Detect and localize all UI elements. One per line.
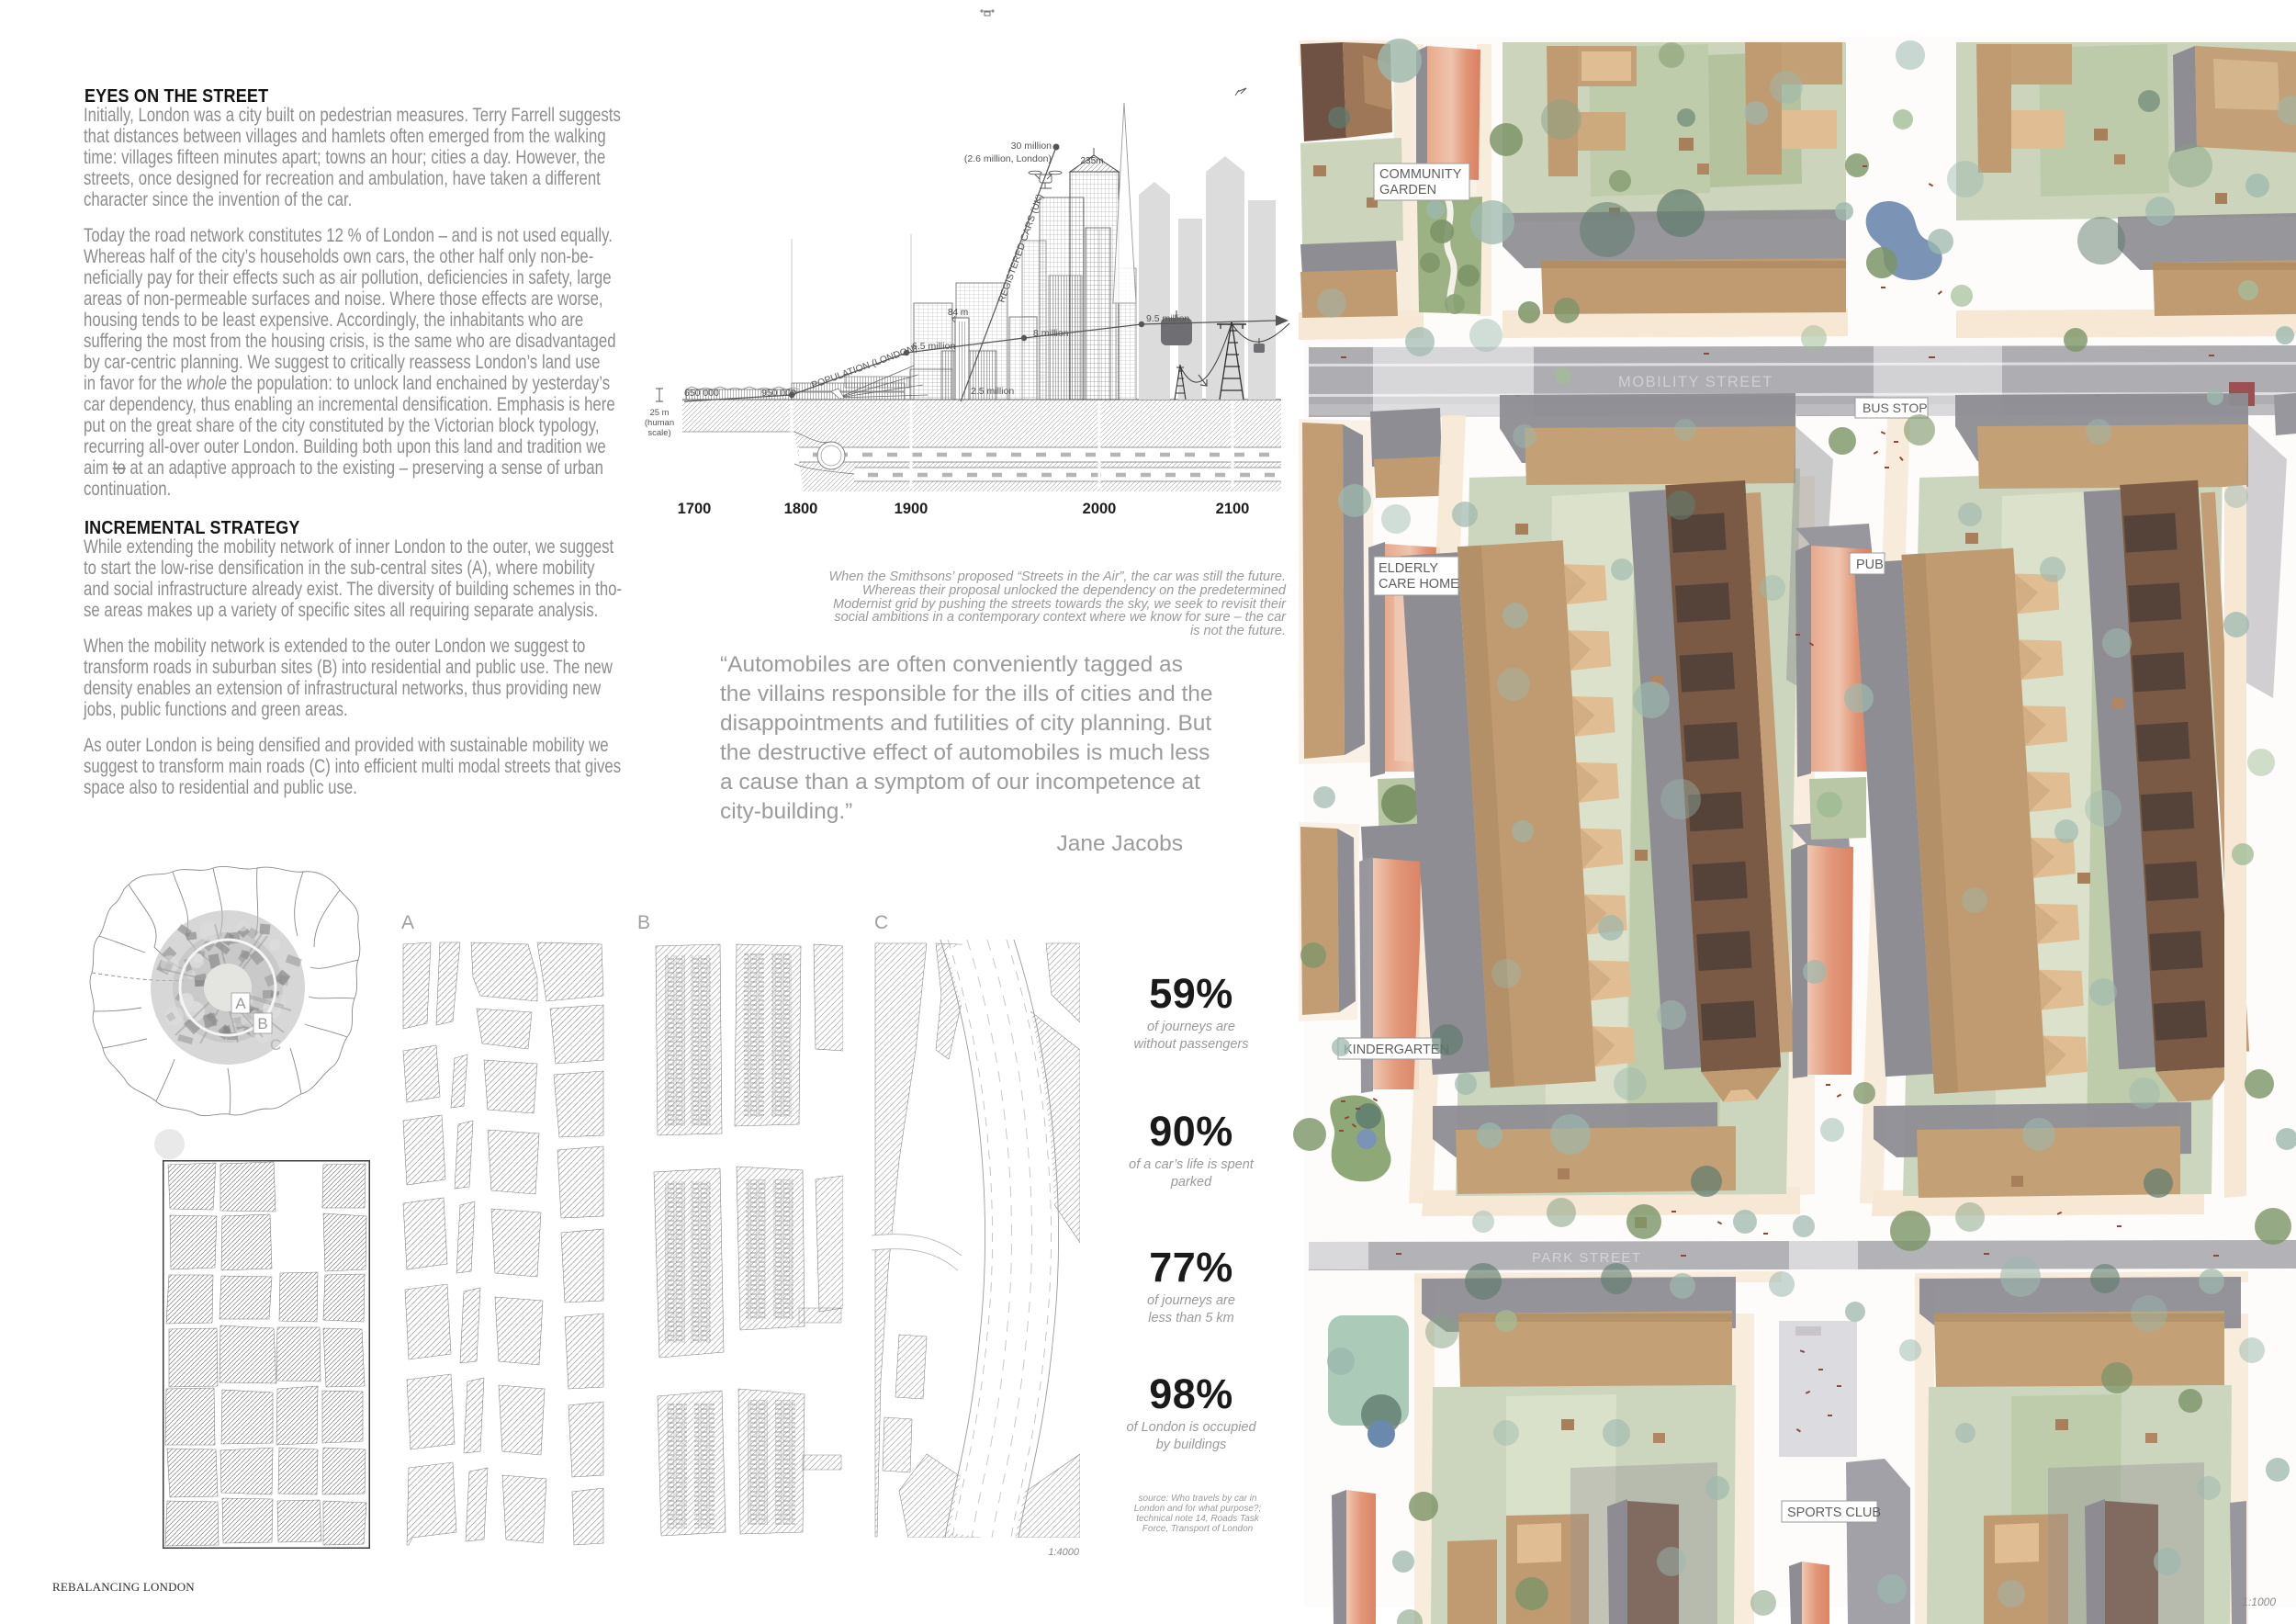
svg-text:84 m: 84 m bbox=[948, 308, 968, 318]
svg-text:8 million: 8 million bbox=[1033, 328, 1069, 339]
svg-text:950 000: 950 000 bbox=[761, 388, 796, 399]
svg-text:MOBILITY STREET: MOBILITY STREET bbox=[1618, 374, 1773, 390]
svg-text:A: A bbox=[235, 995, 246, 1012]
svg-text:(2.6 million, London): (2.6 million, London) bbox=[964, 153, 1052, 164]
svg-text:COMMUNITY: COMMUNITY bbox=[1379, 167, 1462, 182]
svg-text:CARE HOME: CARE HOME bbox=[1379, 577, 1459, 592]
svg-text:25 m: 25 m bbox=[649, 408, 669, 418]
svg-text:ELDERLY: ELDERLY bbox=[1379, 561, 1438, 576]
svg-text:1:1000: 1:1000 bbox=[2242, 1596, 2276, 1608]
svg-text:B: B bbox=[257, 1015, 267, 1032]
svg-text:2.5 million: 2.5 million bbox=[971, 386, 1014, 397]
svg-text:1700: 1700 bbox=[678, 501, 712, 517]
svg-text:1900: 1900 bbox=[895, 501, 929, 517]
svg-text:2000: 2000 bbox=[1083, 501, 1117, 517]
svg-text:SPORTS CLUB: SPORTS CLUB bbox=[1787, 1506, 1881, 1520]
svg-text:BUS STOP: BUS STOP bbox=[1863, 400, 1928, 415]
svg-text:1800: 1800 bbox=[784, 501, 818, 517]
svg-text:GARDEN: GARDEN bbox=[1379, 183, 1436, 197]
svg-text:6.5 million: 6.5 million bbox=[912, 341, 955, 352]
svg-text:650 000: 650 000 bbox=[684, 388, 719, 399]
svg-text:PUB: PUB bbox=[1856, 558, 1884, 572]
svg-text:30 million: 30 million bbox=[1011, 141, 1052, 152]
svg-text:235m: 235m bbox=[1080, 156, 1103, 166]
svg-text:C: C bbox=[270, 1036, 281, 1054]
svg-text:scale): scale) bbox=[647, 428, 670, 438]
svg-text:2100: 2100 bbox=[1216, 501, 1250, 517]
svg-text:PARK STREET: PARK STREET bbox=[1532, 1250, 1642, 1266]
svg-text:9.5 million: 9.5 million bbox=[1146, 313, 1189, 324]
svg-text:(human: (human bbox=[645, 418, 674, 428]
